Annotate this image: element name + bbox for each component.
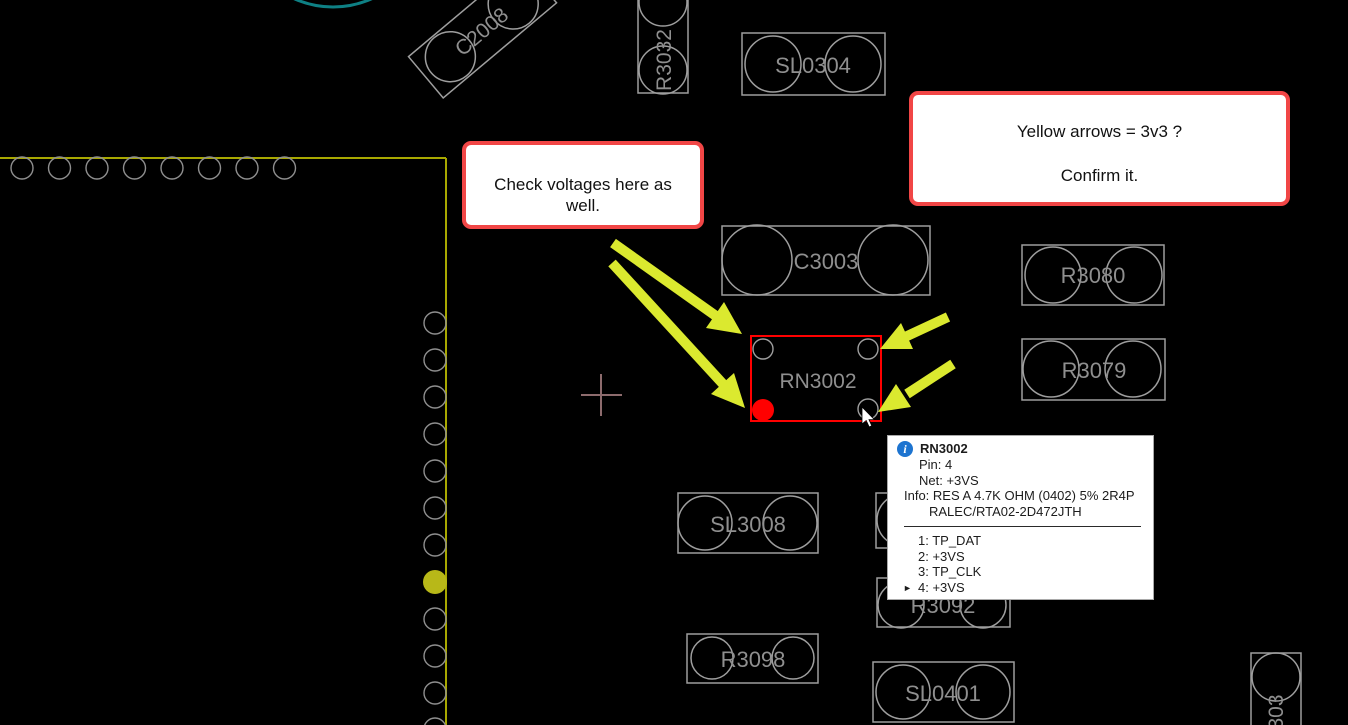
component-r3098[interactable]: R3098: [687, 634, 818, 683]
annotation-check-voltages: Check voltages here as well.: [462, 141, 704, 229]
annotation-line2: Confirm it.: [923, 165, 1276, 186]
annotation-text: Check voltages here as well.: [494, 175, 672, 215]
component-label: SL0401: [905, 681, 981, 706]
pin-list-item: 1: TP_DAT: [888, 533, 1153, 549]
component-r3032[interactable]: R3032: [638, 0, 688, 94]
pin-list-item-selected: ► 4: +3VS: [888, 580, 1153, 596]
tooltip-pin: Pin: 4: [888, 457, 1153, 473]
arrow-to-bottom-right-pad: [878, 364, 953, 412]
pad-column-left: [424, 312, 446, 725]
component-label: R3098: [721, 647, 786, 672]
component-sl0401[interactable]: SL0401: [873, 662, 1014, 722]
component-label: C3003: [794, 249, 859, 274]
pin-list-item: 3: TP_CLK: [888, 564, 1153, 580]
component-label: R3032: [653, 29, 676, 91]
pin-list-item: 2: +3VS: [888, 549, 1153, 565]
net-info-tooltip: i RN3002 Pin: 4 Net: +3VS Info: RES A 4.…: [887, 435, 1154, 600]
boardview-canvas[interactable]: C2008 R3032 SL0304 C3003 R3080 R3079: [0, 0, 1348, 725]
highlighted-net-dot: [423, 570, 447, 594]
component-c3003[interactable]: C3003: [722, 225, 930, 295]
selected-pin-marker-icon: ►: [903, 581, 912, 597]
pad-row-top: [11, 157, 296, 179]
tooltip-net: Net: +3VS: [888, 473, 1153, 489]
tooltip-info-line1: Info: RES A 4.7K OHM (0402) 5% 2R4P: [888, 488, 1153, 504]
component-label: SL0304: [775, 53, 851, 78]
component-sl3008[interactable]: SL3008: [678, 493, 818, 553]
component-label: RN3002: [779, 370, 856, 393]
component-rn3002-highlighted[interactable]: RN3002: [751, 336, 881, 421]
mouse-cursor-icon: [862, 407, 874, 427]
tooltip-divider: [904, 526, 1141, 527]
component-r3079[interactable]: R3079: [1022, 339, 1165, 400]
component-label: R3079: [1062, 358, 1127, 383]
component-303-partial[interactable]: 303: [1251, 653, 1301, 725]
annotation-yellow-arrows: Yellow arrows = 3v3 ? Confirm it.: [909, 91, 1290, 206]
board-edge-lines: [0, 158, 446, 725]
component-label: 303: [1265, 694, 1288, 725]
tooltip-info-line2: RALEC/RTA02-2D472JTH: [888, 504, 1153, 520]
tooltip-title: RN3002: [920, 441, 968, 457]
component-c2008[interactable]: C2008: [408, 0, 556, 98]
info-icon: i: [897, 441, 913, 457]
teal-track-arc: [238, 0, 428, 7]
arrow-to-top-right-pad: [880, 317, 948, 349]
selected-pin-dot: [752, 399, 774, 421]
component-r3080[interactable]: R3080: [1022, 245, 1164, 305]
crosshair-marker: [581, 374, 622, 416]
component-label: R3080: [1061, 263, 1126, 288]
component-label: C2008: [451, 3, 513, 60]
component-label: SL3008: [710, 512, 786, 537]
annotation-line1: Yellow arrows = 3v3 ?: [923, 121, 1276, 142]
component-sl0304[interactable]: SL0304: [742, 33, 885, 95]
